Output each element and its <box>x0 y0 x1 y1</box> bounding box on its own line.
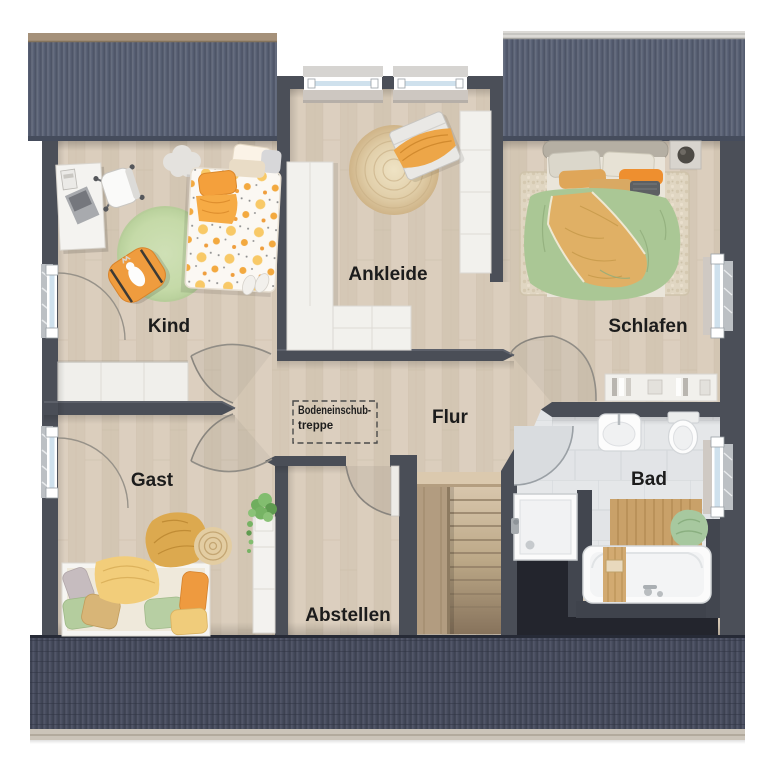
svg-text:Bodeneinschub-: Bodeneinschub- <box>298 405 371 417</box>
svg-text:Kind: Kind <box>148 316 190 337</box>
svg-text:Abstellen: Abstellen <box>305 605 391 626</box>
svg-text:Schlafen: Schlafen <box>608 316 687 337</box>
svg-text:Flur: Flur <box>432 407 468 428</box>
svg-text:Ankleide: Ankleide <box>348 264 427 285</box>
svg-text:Gast: Gast <box>131 470 174 491</box>
svg-text:treppe: treppe <box>298 420 333 432</box>
svg-text:Bad: Bad <box>631 469 667 490</box>
